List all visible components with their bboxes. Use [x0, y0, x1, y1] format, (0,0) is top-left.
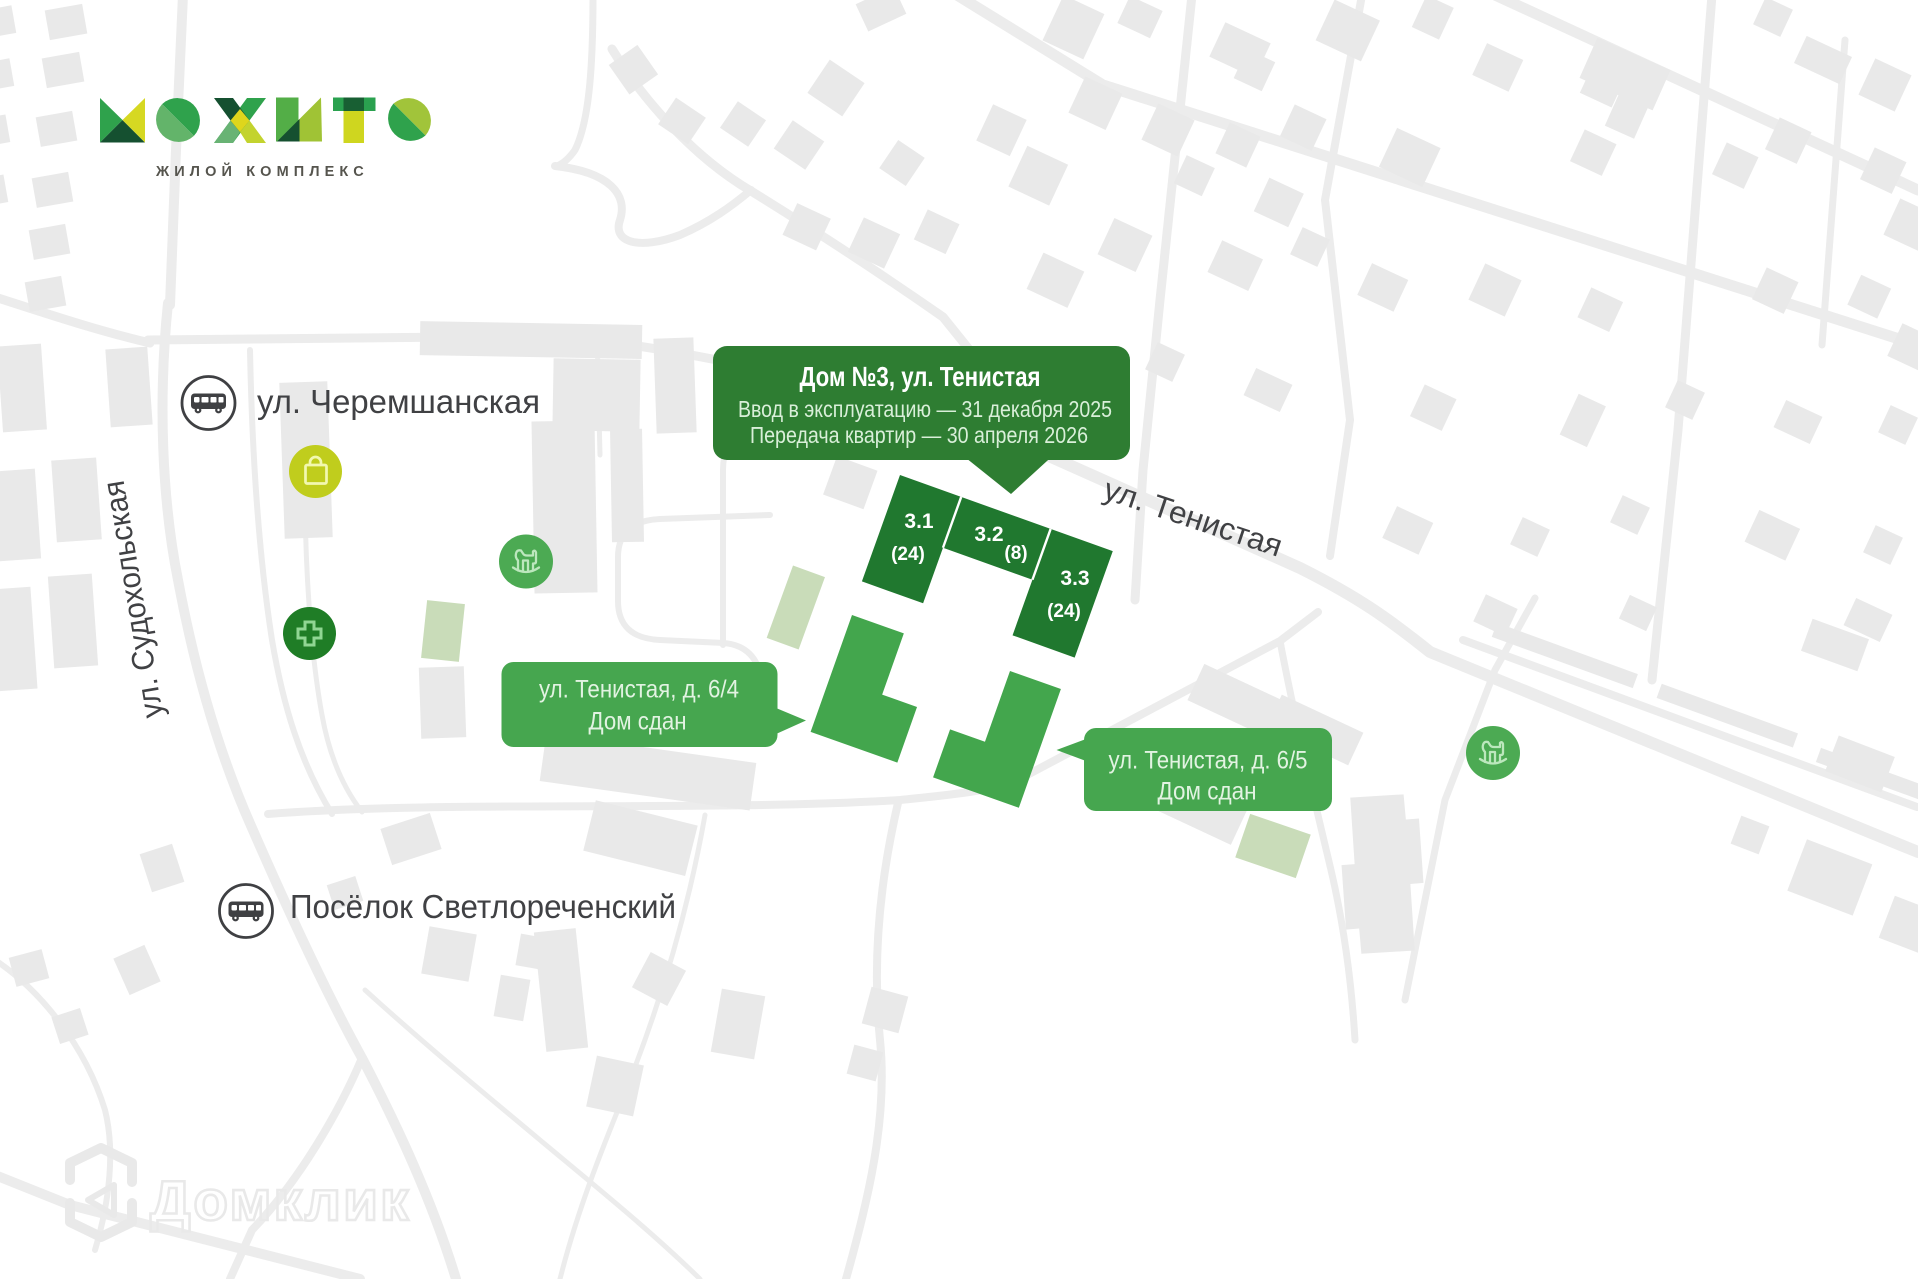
svg-text:3.2: 3.2	[974, 523, 1003, 546]
svg-text:ЖИЛОЙ КОМПЛЕКС: ЖИЛОЙ КОМПЛЕКС	[155, 162, 370, 180]
svg-text:(8): (8)	[1004, 543, 1027, 564]
svg-text:Дом №3, ул. Тенистая: Дом №3, ул. Тенистая	[800, 361, 1041, 392]
svg-text:ул. Черемшанская: ул. Черемшанская	[257, 383, 540, 420]
svg-text:Посёлок Светлореченский: Посёлок Светлореченский	[290, 888, 676, 925]
svg-text:3.1: 3.1	[904, 510, 934, 533]
svg-text:(24): (24)	[1047, 601, 1081, 622]
svg-text:Ввод в эксплуатацию — 31 декаб: Ввод в эксплуатацию — 31 декабря 2025	[738, 396, 1112, 422]
svg-text:Дом сдан: Дом сдан	[589, 708, 687, 736]
svg-text:3.3: 3.3	[1060, 567, 1089, 590]
svg-text:(24): (24)	[891, 544, 925, 565]
svg-text:Передача квартир — 30 апреля 2: Передача квартир — 30 апреля 2026	[750, 422, 1088, 448]
svg-text:Домклик: Домклик	[150, 1169, 411, 1233]
svg-text:Дом сдан: Дом сдан	[1158, 778, 1257, 806]
svg-text:ул. Тенистая, д. 6/5: ул. Тенистая, д. 6/5	[1109, 747, 1308, 775]
svg-text:ул. Тенистая, д. 6/4: ул. Тенистая, д. 6/4	[539, 676, 739, 704]
